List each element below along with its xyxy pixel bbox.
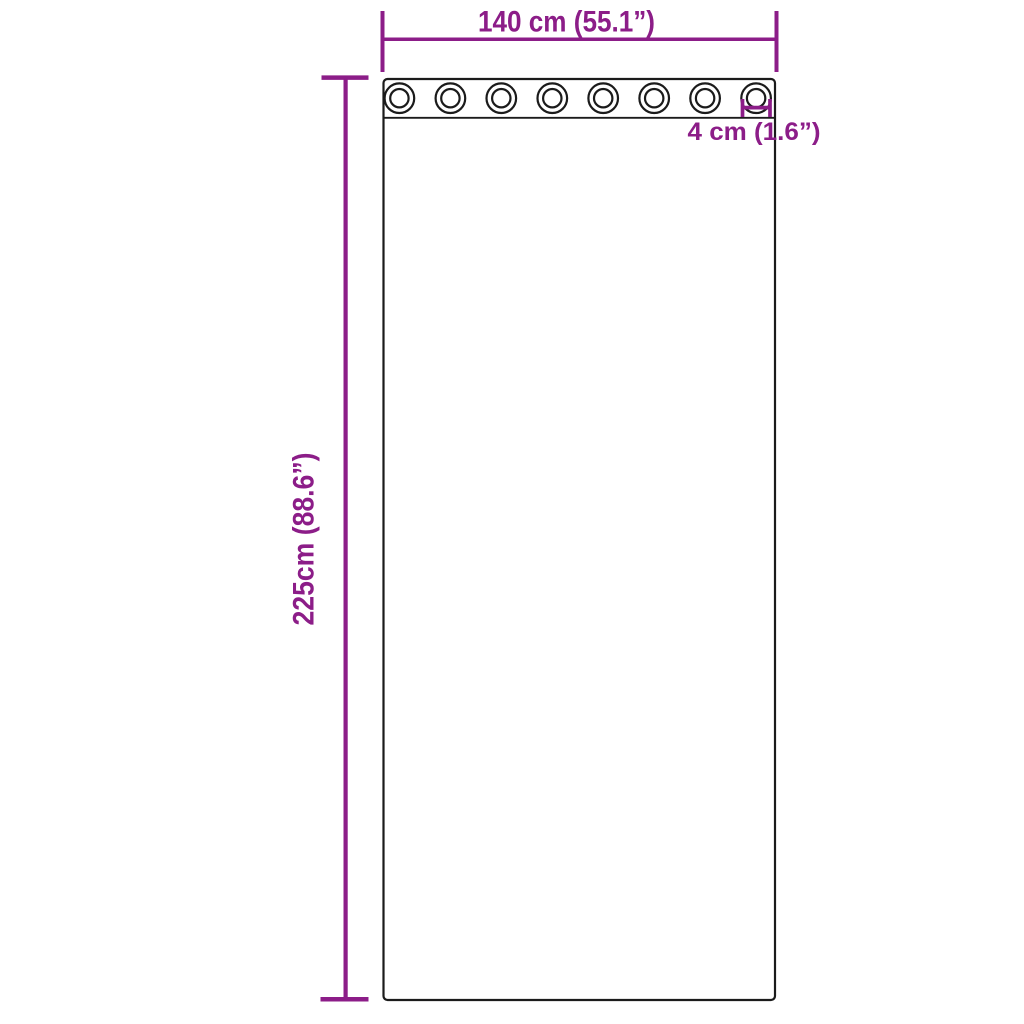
- svg-text:4 cm (1.6”): 4 cm (1.6”): [688, 118, 821, 146]
- svg-text:225cm (88.6”): 225cm (88.6”): [288, 453, 321, 626]
- svg-text:140 cm (55.1”): 140 cm (55.1”): [478, 6, 655, 39]
